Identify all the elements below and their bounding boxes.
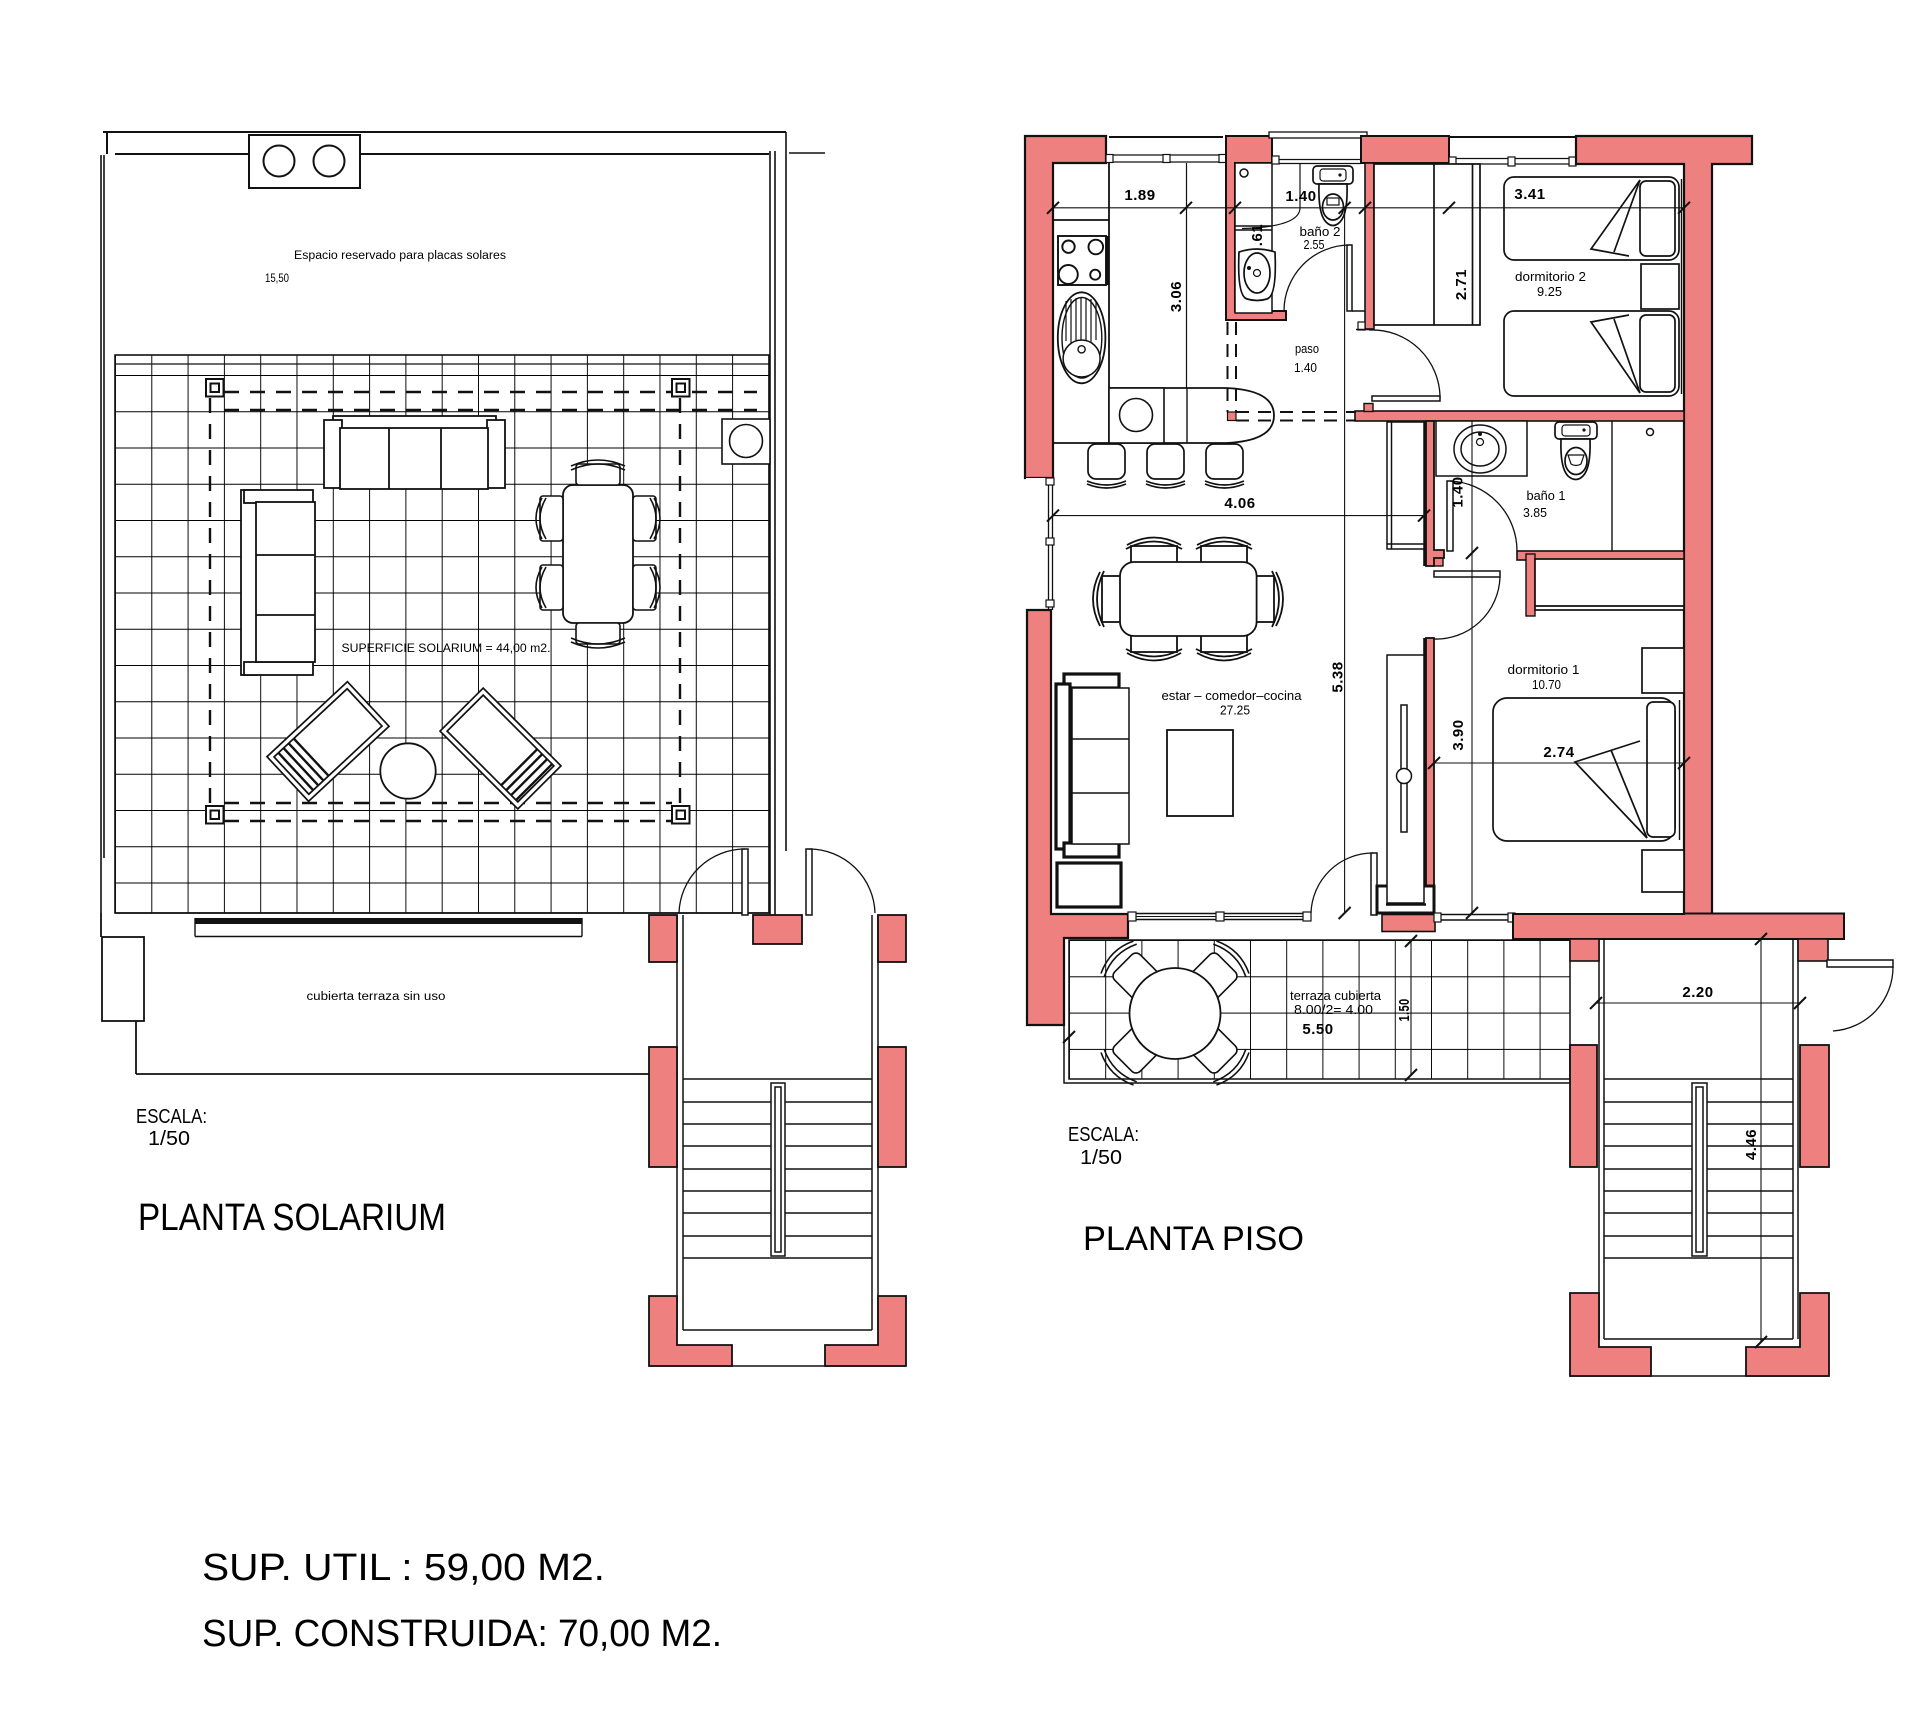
svg-text:1.50: 1.50 [1396,999,1413,1022]
svg-text:ESCALA:: ESCALA: [136,1106,207,1128]
svg-text:10.70: 10.70 [1532,678,1561,692]
svg-text:SUPERFICIE SOLARIUM = 44,00: SUPERFICIE SOLARIUM = 44,00 m2. [342,643,551,655]
svg-text:PLANTA SOLARIUM: PLANTA SOLARIUM [138,1197,446,1239]
svg-text:3.41: 3.41 [1514,186,1545,203]
svg-text:5.50: 5.50 [1302,1021,1333,1038]
svg-text:cubierta terraza sin uso: cubierta terraza sin uso [307,991,446,1003]
svg-text:5.38: 5.38 [1330,661,1347,692]
svg-text:SUP. UTIL : 59,00 M2.: SUP. UTIL : 59,00 M2. [202,1547,605,1589]
svg-text:dormitorio 2: dormitorio 2 [1515,270,1586,284]
svg-text:1.40: 1.40 [1285,188,1316,205]
svg-text:3.85: 3.85 [1523,506,1547,520]
svg-text:4.06: 4.06 [1224,495,1255,512]
svg-text:1.40: 1.40 [1294,361,1317,375]
svg-text:ESCALA:: ESCALA: [1068,1124,1139,1146]
svg-text:1/50: 1/50 [148,1128,190,1150]
svg-text:estar – comedor–cocina: estar – comedor–cocina [1162,689,1302,703]
svg-text:15,50: 15,50 [265,273,289,285]
svg-text:baño 2: baño 2 [1300,225,1341,239]
svg-text:PLANTA PISO: PLANTA PISO [1083,1220,1304,1258]
svg-text:2.74: 2.74 [1543,744,1574,761]
svg-text:paso: paso [1295,342,1319,356]
svg-text:4.46: 4.46 [1743,1129,1760,1160]
svg-text:terraza cubierta: terraza cubierta [1290,989,1381,1003]
svg-text:3.06: 3.06 [1168,281,1185,312]
svg-text:.61: .61 [1249,224,1266,246]
svg-text:SUP. CONSTRUIDA: 70,00 M2.: SUP. CONSTRUIDA: 70,00 M2. [202,1613,722,1655]
svg-text:dormitorio 1: dormitorio 1 [1508,663,1580,677]
svg-text:27.25: 27.25 [1220,704,1250,718]
svg-text:8.00/2= 4.00: 8.00/2= 4.00 [1294,1003,1373,1017]
svg-text:Espacio reservado para plac: Espacio reservado para placas solares [294,250,506,262]
svg-text:2.55: 2.55 [1304,238,1325,252]
svg-text:1.89: 1.89 [1124,187,1155,204]
svg-text:1.40: 1.40 [1450,476,1467,507]
svg-text:baño 1: baño 1 [1527,489,1566,503]
svg-text:1/50: 1/50 [1080,1147,1122,1169]
svg-text:2.20: 2.20 [1682,984,1713,1001]
svg-text:2.71: 2.71 [1453,269,1470,300]
svg-text:9.25: 9.25 [1537,285,1562,299]
svg-text:3.90: 3.90 [1450,719,1467,750]
